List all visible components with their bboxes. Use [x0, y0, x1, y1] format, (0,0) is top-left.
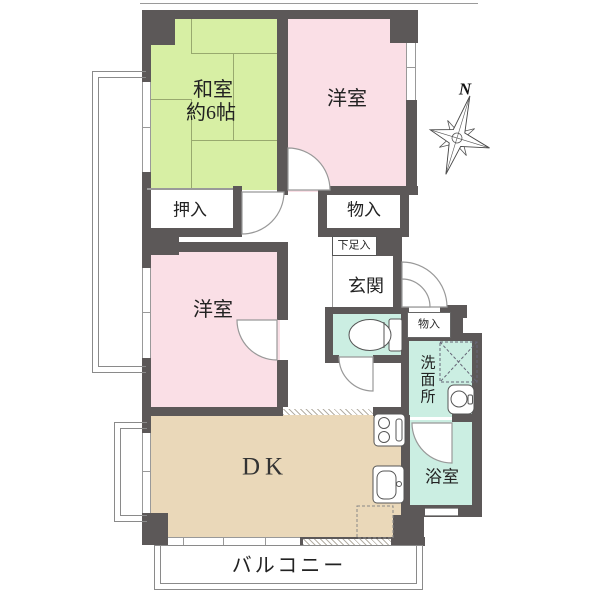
youshitsu-top-label: 洋室 — [327, 89, 367, 109]
door-arc — [412, 423, 452, 463]
monoire-side-label: 物入 — [418, 320, 440, 331]
genkan-label: 玄関 — [348, 277, 384, 295]
stove-icon — [374, 414, 405, 446]
door-arc — [237, 320, 277, 360]
monoire-upper-label: 物入 — [347, 202, 381, 219]
kitchen-sink-icon — [373, 466, 404, 503]
yokushitsu-label: 浴室 — [425, 469, 459, 486]
getabako-label: 下足入 — [338, 241, 371, 252]
balcony-label: バルコニー — [232, 556, 347, 576]
oshiire-label: 押入 — [173, 202, 207, 219]
senmenjo-label: 洗面所 — [419, 355, 434, 406]
washitsu-size-label: 約6帖 — [186, 103, 236, 123]
plan-overlay — [0, 0, 600, 600]
floor-plan: 和室 約6帖 洋室 洋室 押入 物入 下足入 玄関 物入 洗面所 浴室 DK バ… — [0, 0, 600, 600]
refrigerator-space — [357, 506, 393, 538]
door-arc — [242, 192, 284, 234]
washitsu-label: 和室 — [193, 80, 233, 100]
compass-north-label: N — [459, 81, 471, 98]
washing-machine-icon — [440, 342, 477, 382]
door-arc — [288, 148, 330, 190]
compass-rose-icon — [419, 88, 503, 185]
door-arc — [339, 357, 373, 391]
washbasin-icon — [448, 385, 474, 414]
dk-label: DK — [242, 455, 288, 480]
toilet-icon — [349, 319, 402, 351]
youshitsu-mid-label: 洋室 — [193, 300, 233, 320]
